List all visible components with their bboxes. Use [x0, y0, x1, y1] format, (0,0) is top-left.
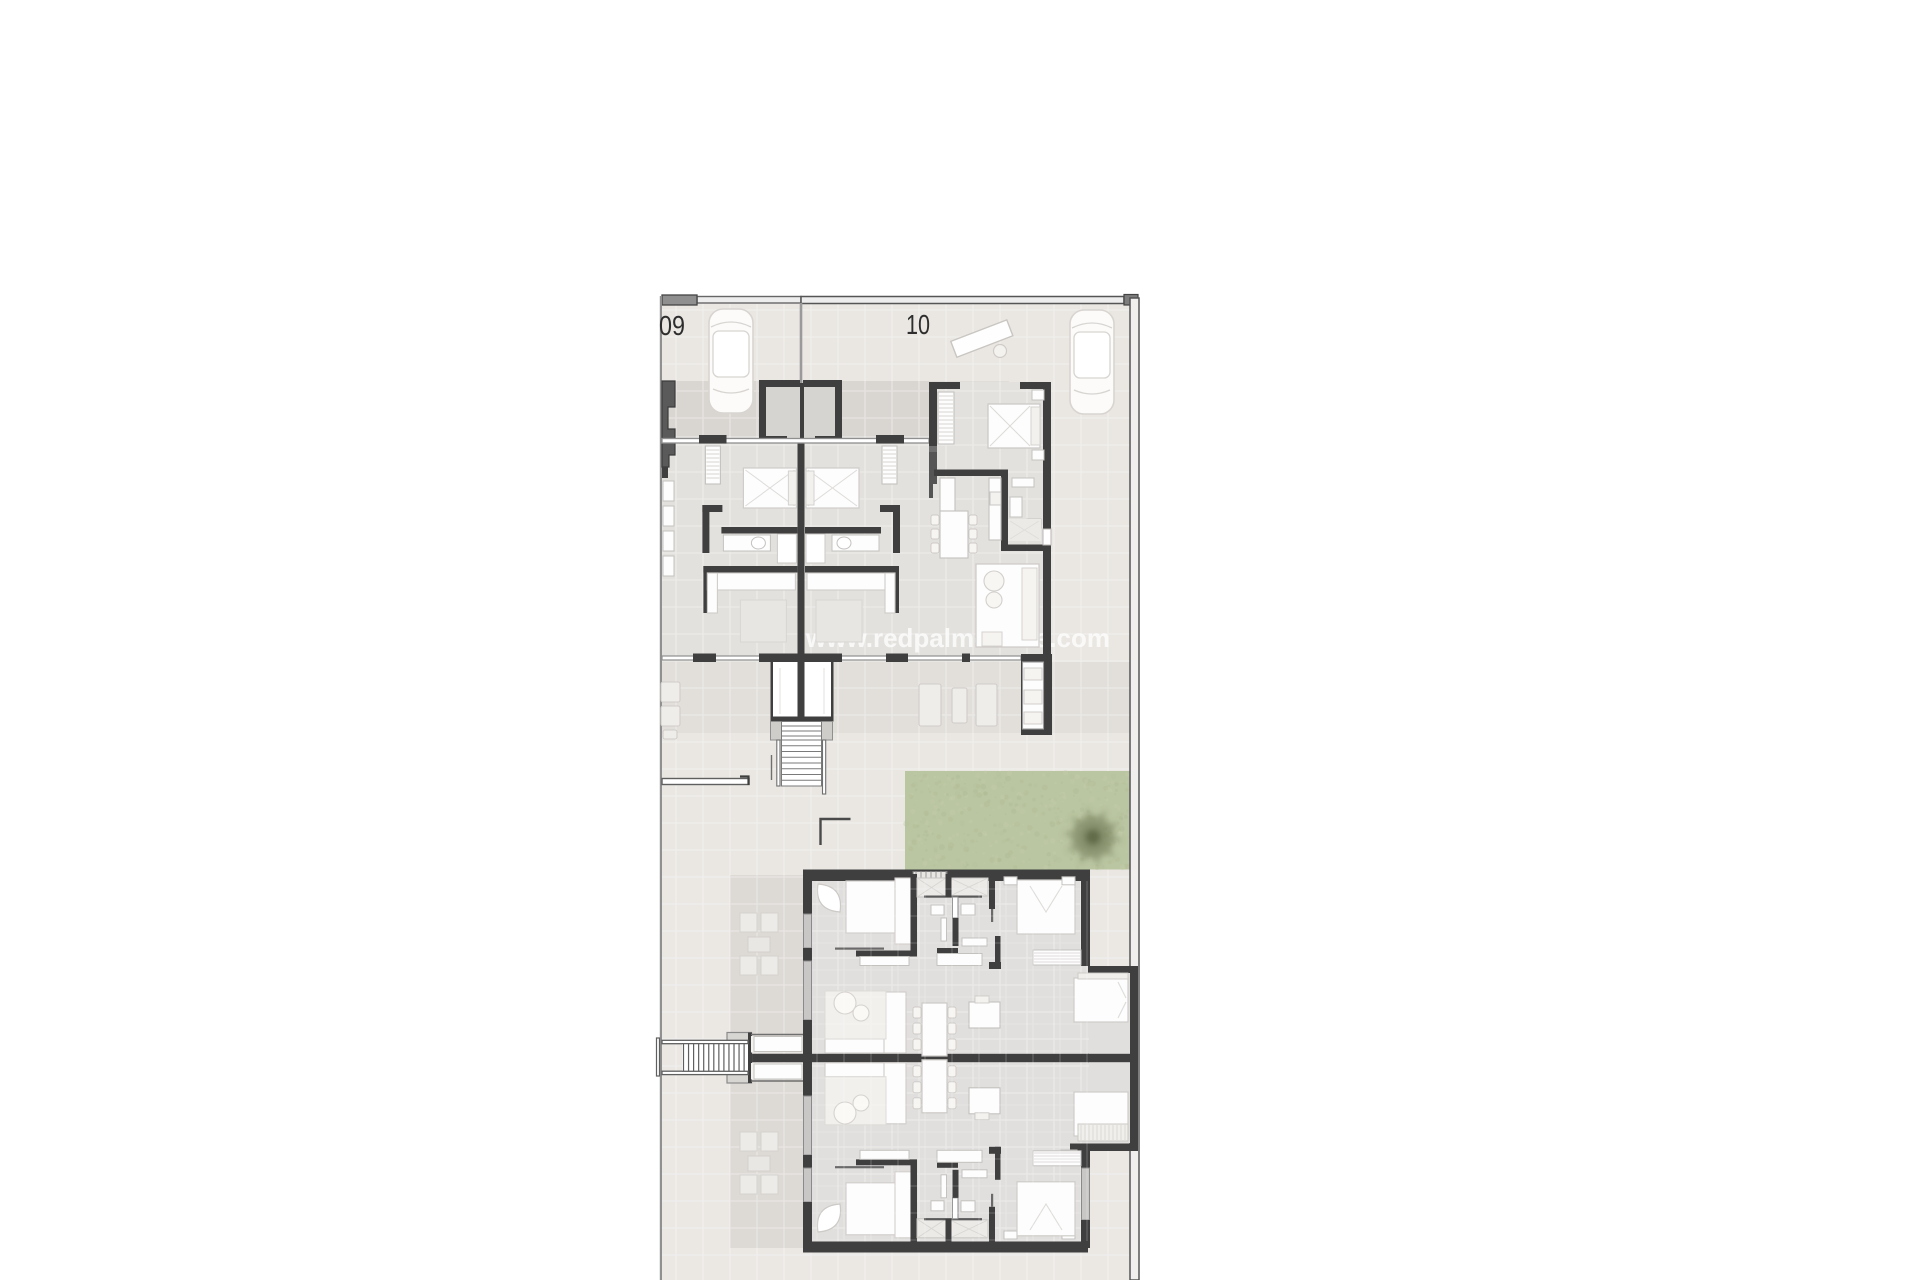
svg-text:09: 09 — [659, 310, 685, 341]
svg-text:10: 10 — [906, 309, 930, 340]
